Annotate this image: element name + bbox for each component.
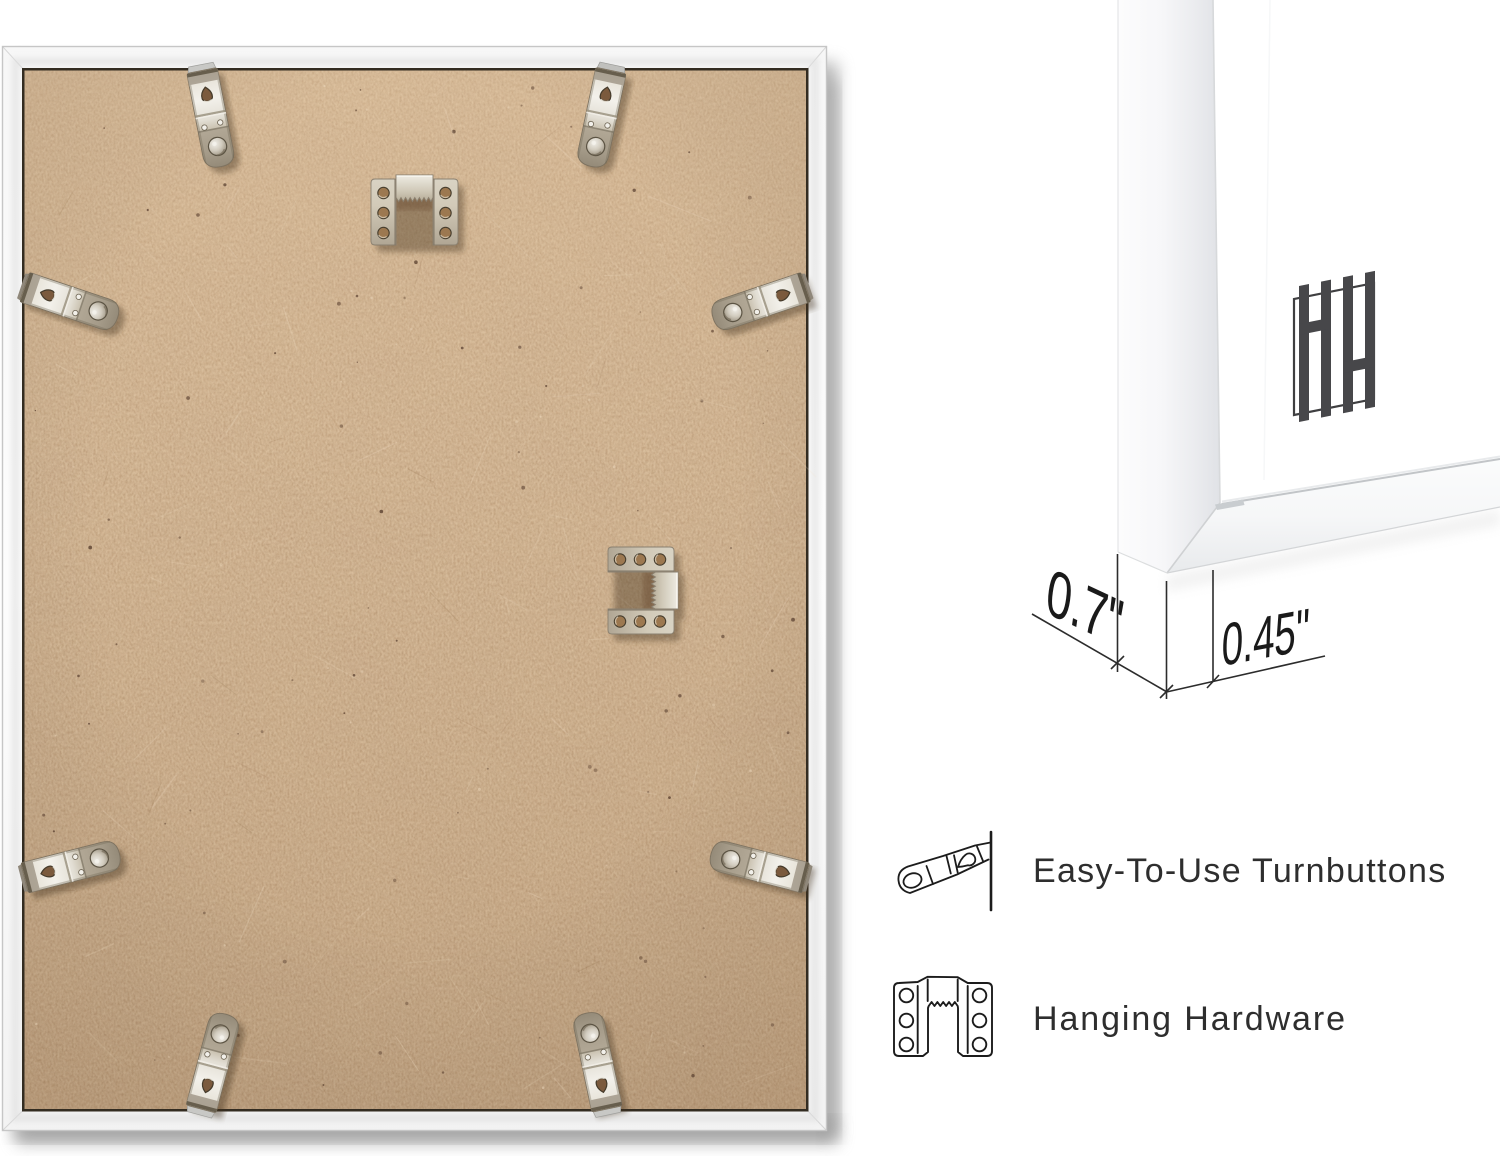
svg-text:Hanging Hardware: Hanging Hardware bbox=[1033, 1000, 1347, 1038]
svg-text:Easy-To-Use Turnbuttons: Easy-To-Use Turnbuttons bbox=[1033, 852, 1447, 890]
